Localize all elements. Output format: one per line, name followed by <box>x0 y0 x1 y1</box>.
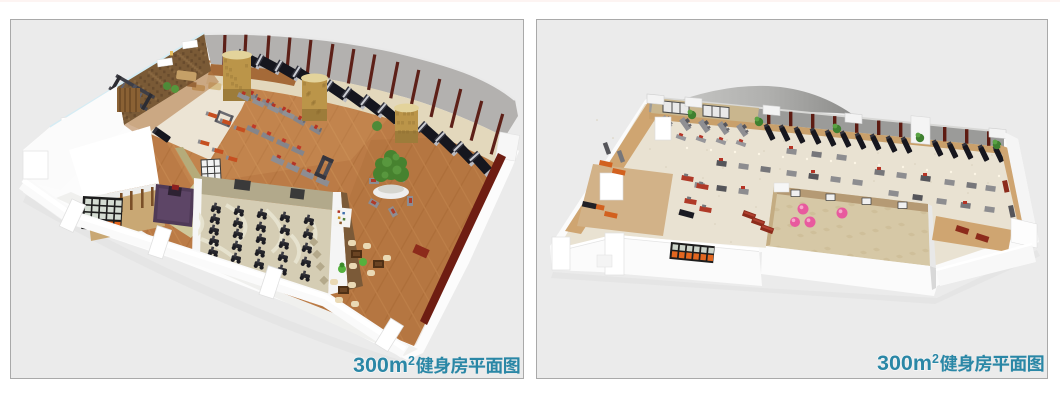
svg-text:300m: 300m <box>877 351 932 375</box>
svg-text:2: 2 <box>932 352 939 366</box>
svg-text:300m: 300m <box>353 353 408 377</box>
svg-text:2: 2 <box>408 354 415 368</box>
